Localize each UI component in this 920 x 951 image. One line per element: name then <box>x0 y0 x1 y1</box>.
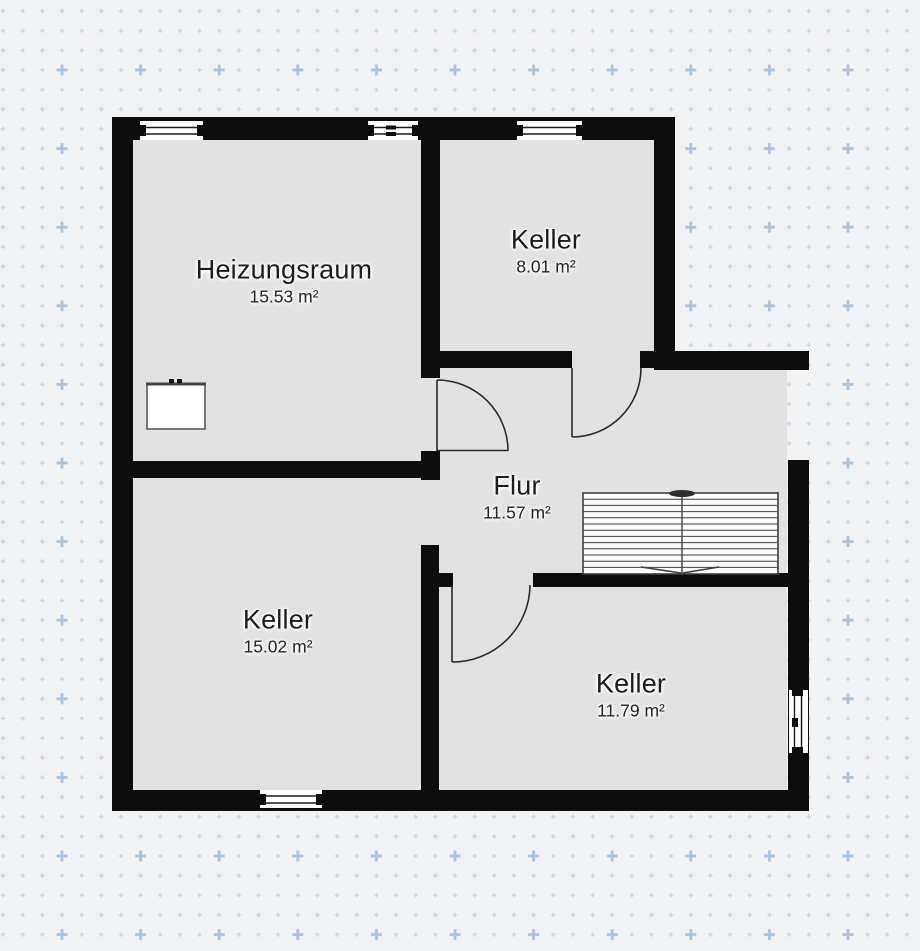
inner-wall-keller8-bottom-right <box>640 351 660 368</box>
stair-entry-marker <box>669 490 695 497</box>
inner-wall-flur-bottom-left <box>421 573 453 587</box>
staircase <box>583 490 778 574</box>
floorplan-canvas: Heizungsraum 15.53 m² Keller 8.01 m² Flu… <box>0 0 920 951</box>
inner-wall-flur-bottom-right <box>533 573 789 587</box>
heating-boiler <box>146 379 206 429</box>
inner-wall-heizung-bottom <box>112 461 440 478</box>
window-bottom-wall <box>260 790 322 808</box>
inner-wall-keller8-bottom-left <box>421 351 572 368</box>
window-right-wall <box>789 690 808 753</box>
outer-wall-extension-top <box>654 351 809 370</box>
outer-wall-bottom <box>112 790 809 811</box>
inner-wall-v1-upper <box>421 140 440 378</box>
window-top-middle <box>368 121 418 140</box>
window-top-left <box>140 121 203 140</box>
outer-wall-right <box>788 460 809 811</box>
window-top-keller <box>517 121 582 140</box>
floorplan-drawing <box>0 0 920 951</box>
outer-wall-keller-top-right <box>654 117 675 370</box>
